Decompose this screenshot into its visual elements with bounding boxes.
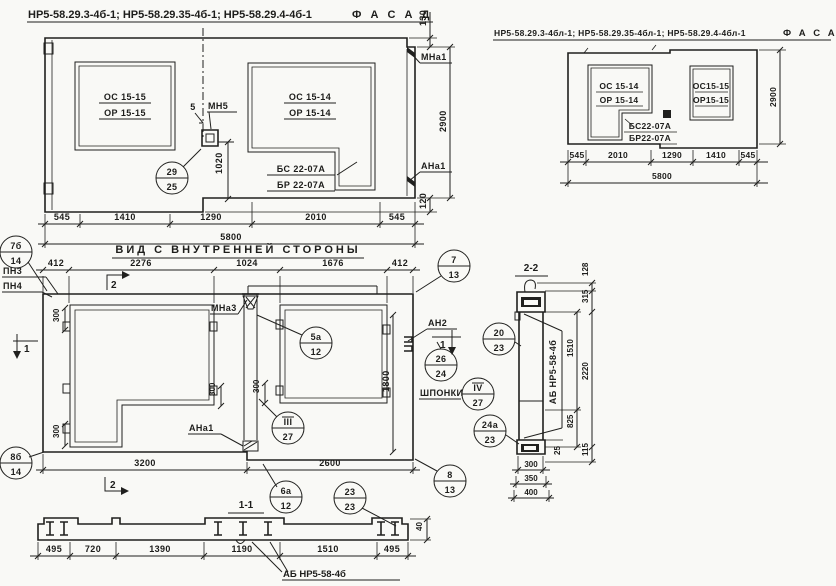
- extension-lines: [205, 38, 455, 212]
- facade-right-title: НР5-58.29.3-4бл-1; НР5-58.29.35-4бл-1; Н…: [494, 28, 746, 38]
- callout-bottom: 13: [449, 270, 460, 280]
- dim: 1510: [317, 544, 339, 554]
- marker-label: 2: [111, 280, 117, 291]
- dim-2220: 2220: [581, 362, 590, 380]
- embed-mark: [663, 110, 671, 118]
- dim-3200: 3200: [134, 458, 156, 468]
- dim-300: 300: [524, 460, 538, 469]
- inner-view-title: ВИД С ВНУТРЕННЕЙ СТОРОНЫ: [115, 243, 360, 256]
- panel-edge-lines: [52, 40, 407, 210]
- dim: 412: [392, 258, 408, 268]
- panel-drawing: НР5-58.29.3-4б-1; НР5-58.29.35-4б-1; НР5…: [0, 0, 836, 586]
- facade-right-fasad-label: Ф А С А Д: [783, 28, 836, 39]
- shponki-label: ШПОНКИ: [420, 388, 463, 398]
- dim-300: 300: [208, 382, 217, 396]
- callout-top: 23: [345, 487, 356, 497]
- section-2-2-title: 2-2: [524, 263, 539, 274]
- lifting-loop: [525, 280, 536, 292]
- extension-lines: [43, 454, 413, 474]
- opening-label: ОС 15-15: [104, 92, 146, 102]
- window-opening: [75, 62, 175, 150]
- marker-label: 1: [24, 344, 30, 355]
- callout-bottom: 12: [311, 347, 322, 357]
- opening-label: ОР 15-15: [104, 108, 146, 118]
- ana1-leader: [188, 434, 243, 446]
- section-1-1-title: 1-1: [239, 500, 254, 511]
- callout-top: 8: [447, 470, 452, 480]
- dim: 545: [389, 212, 405, 222]
- mn5-label: МН5: [208, 101, 228, 111]
- callout-bottom: 23: [345, 502, 356, 512]
- callout-top: 7: [451, 255, 456, 265]
- dim: 1410: [706, 150, 726, 160]
- joint-strip: [244, 294, 257, 440]
- callout-bottom: 24: [436, 369, 447, 379]
- section-1-1: 1-1 495 720 1390 1190 1510 495 40 АБ НР5…: [30, 500, 431, 580]
- dim-40: 40: [415, 522, 424, 531]
- dim-130: 130: [418, 10, 428, 26]
- mn5-embed-detail: [202, 130, 218, 146]
- an2-leader: [408, 329, 457, 341]
- dim: 545: [740, 150, 755, 160]
- callout-bottom: 23: [485, 435, 496, 445]
- dim: 545: [54, 212, 70, 222]
- dim-line: [36, 467, 420, 473]
- dim-120: 120: [418, 193, 428, 209]
- dim-total: 5800: [220, 232, 242, 242]
- facade-left-view: НР5-58.29.3-4б-1; НР5-58.29.35-4б-1; НР5…: [27, 9, 455, 248]
- callout-key-iii-27: III 27: [259, 399, 304, 444]
- opening-label: ОС15-15: [693, 81, 730, 91]
- dim-315: 315: [581, 289, 590, 303]
- dim-350: 350: [524, 474, 538, 483]
- callout-top: III: [284, 417, 293, 427]
- window-opening-inner: [79, 66, 171, 146]
- callout-8b-14: 8б 14: [0, 447, 44, 479]
- dim: 1676: [322, 258, 344, 268]
- callout-bottom: 13: [445, 485, 456, 495]
- wall-edges: [519, 312, 543, 440]
- extension-lines: [43, 276, 413, 303]
- opening-label: БС 22-07А: [277, 164, 326, 174]
- callout-top: IV: [473, 383, 482, 393]
- callout-6a-12: 6а 12: [263, 464, 302, 513]
- opening-label: ОС 15-14: [289, 92, 331, 102]
- opening-label: БР 22-07А: [277, 180, 325, 190]
- dim-1800: 1800: [381, 370, 391, 392]
- dim: 2276: [130, 258, 152, 268]
- dim: 1290: [200, 212, 222, 222]
- dim: 1024: [236, 258, 258, 268]
- mna3-label: МНа3: [211, 303, 237, 313]
- facade-right-view: НР5-58.29.3-4бл-1; НР5-58.29.35-4бл-1; Н…: [493, 28, 836, 187]
- window-opening: [280, 305, 387, 403]
- dim-128: 128: [581, 262, 590, 276]
- callout-key-iv-27: IV 27: [462, 378, 494, 410]
- dim: 1190: [231, 544, 252, 554]
- callout-20-23: 20 23: [483, 323, 521, 355]
- callout-top: 6а: [281, 486, 292, 496]
- section-marker-2-top: 2: [107, 271, 130, 291]
- drawing-sheet: НР5-58.29.3-4б-1; НР5-58.29.35-4б-1; НР5…: [0, 0, 836, 586]
- frame-tabs: [63, 320, 390, 433]
- opening-label: ОР 15-14: [289, 108, 331, 118]
- dim-40-line: [424, 516, 430, 543]
- callout-5a-12: 5а 12: [257, 315, 332, 359]
- ana1-bracket-hatch: [244, 441, 257, 450]
- dim: 495: [46, 544, 62, 554]
- callout-bottom: 27: [283, 432, 294, 442]
- dim-300: 300: [52, 424, 61, 438]
- callout-8-13: 8 13: [415, 459, 466, 497]
- section-2-2: 2-2 АБ НР5-58-4б 1510 825 25 128 315 222…: [508, 262, 596, 502]
- section-marker-2-bottom: 2: [105, 477, 129, 495]
- an2-label: АН2: [428, 318, 447, 328]
- callout-top: 24а: [482, 420, 499, 430]
- window-opening-inner: [285, 310, 382, 398]
- inner-view: ВИД С ВНУТРЕННЕЙ СТОРОНЫ МНа3 АНа1 412 2…: [0, 236, 521, 526]
- opening-label: БР22-07А: [629, 133, 671, 143]
- callout-bottom: 25: [167, 182, 178, 192]
- dim-2900: 2900: [768, 87, 778, 107]
- opening-label: ОР 15-14: [600, 95, 639, 105]
- dim: 412: [48, 258, 64, 268]
- dim-300-line: [262, 380, 268, 406]
- callout-top: 29: [167, 167, 178, 177]
- dim-2900: 2900: [438, 110, 448, 132]
- bottom-embed-slot: [524, 446, 536, 450]
- dim-300: 300: [52, 308, 61, 322]
- opening-label: БС22-07А: [629, 121, 671, 131]
- dim-5: 5: [190, 102, 195, 112]
- callout-top: 7б: [10, 241, 21, 251]
- top-rib-band: [248, 286, 377, 294]
- dim-total: 5800: [652, 171, 672, 181]
- callout-bottom: 12: [281, 501, 292, 511]
- callout-bottom: 27: [473, 398, 484, 408]
- marker-label: 2: [110, 480, 116, 491]
- panel-outline: [43, 294, 413, 460]
- edge-notches: [584, 45, 656, 53]
- ana1-label: АНа1: [421, 161, 446, 171]
- callout-bottom: 14: [11, 467, 22, 477]
- dim: 1290: [662, 150, 682, 160]
- callout-24a-23: 24а 23: [474, 415, 519, 447]
- callout-top: 20: [494, 328, 505, 338]
- callout-bottom: 23: [494, 343, 505, 353]
- dim: 545: [569, 150, 584, 160]
- callout-23-23: 23 23: [334, 482, 396, 526]
- callout-top: 8б: [10, 452, 21, 462]
- ana1-label: АНа1: [189, 423, 214, 433]
- dim-25: 25: [553, 446, 562, 455]
- dim-1020: 1020: [214, 152, 224, 174]
- dim-825: 825: [566, 414, 575, 428]
- ab-label-vertical: АБ НР5-58-4б: [548, 340, 558, 404]
- callout-top: 5а: [311, 332, 322, 342]
- dim-300: 300: [252, 379, 261, 393]
- dim-2600: 2600: [319, 458, 341, 468]
- callout-29-25: 29 25: [156, 149, 201, 194]
- callout-top: 26: [436, 354, 447, 364]
- dim-400: 400: [524, 488, 538, 497]
- opening-label: ОР15-15: [693, 95, 729, 105]
- dim: 2010: [608, 150, 628, 160]
- window-opening: [690, 66, 733, 120]
- section-marker-1-right: 1: [432, 330, 461, 355]
- dim: 1410: [114, 212, 136, 222]
- slab-profile: [38, 518, 408, 540]
- callout-7-13: 7 13: [416, 250, 470, 292]
- facade-left-title: НР5-58.29.3-4б-1; НР5-58.29.35-4б-1; НР5…: [28, 9, 312, 21]
- dim: 720: [85, 544, 101, 554]
- dim-5-arrow: [195, 113, 203, 123]
- callout-bottom: 14: [11, 256, 22, 266]
- dim-300-line: [218, 383, 224, 409]
- dim: 495: [384, 544, 400, 554]
- mna1-label: МНа1: [421, 52, 447, 62]
- dim-115: 115: [581, 443, 590, 456]
- window-opening-inner: [693, 69, 730, 117]
- pn4-label: ПН4: [3, 281, 22, 291]
- dim: 2010: [305, 212, 327, 222]
- mn5-leader: [207, 112, 237, 129]
- section-marker-1-left: 1: [13, 334, 38, 359]
- dim-1510: 1510: [566, 339, 575, 357]
- top-embed-slot: [524, 300, 538, 305]
- dim: 1390: [149, 544, 171, 554]
- mn5-embed-inner: [206, 134, 214, 142]
- opening-label: ОС 15-14: [599, 81, 638, 91]
- ab-label: АБ НР5-58-4б: [283, 569, 346, 580]
